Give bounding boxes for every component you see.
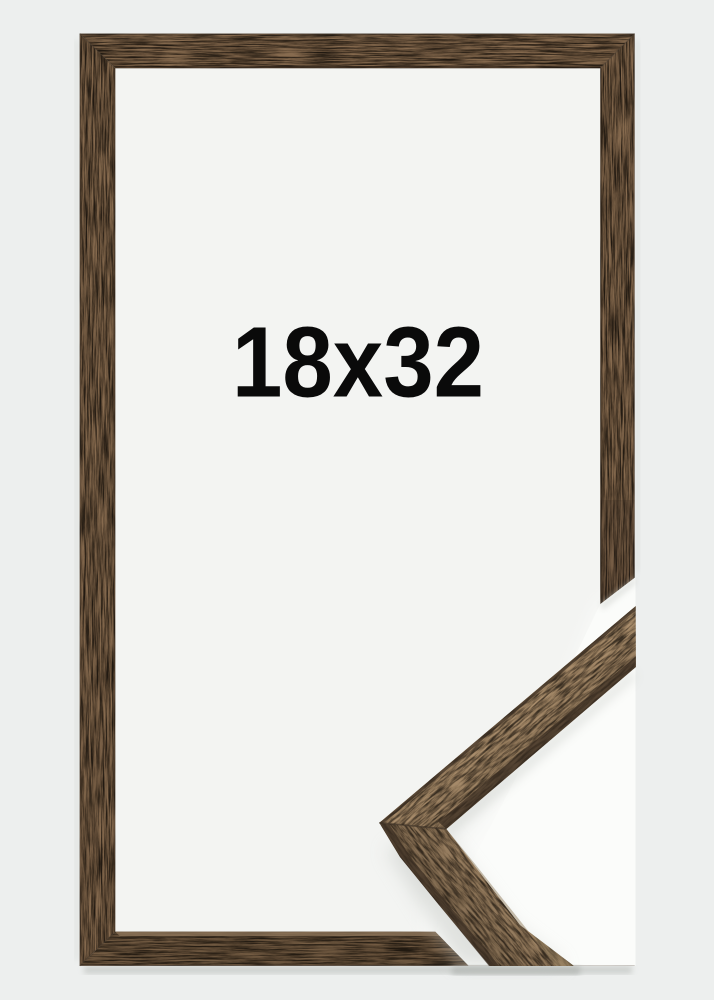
svg-text:18x32: 18x32 [232, 307, 484, 419]
